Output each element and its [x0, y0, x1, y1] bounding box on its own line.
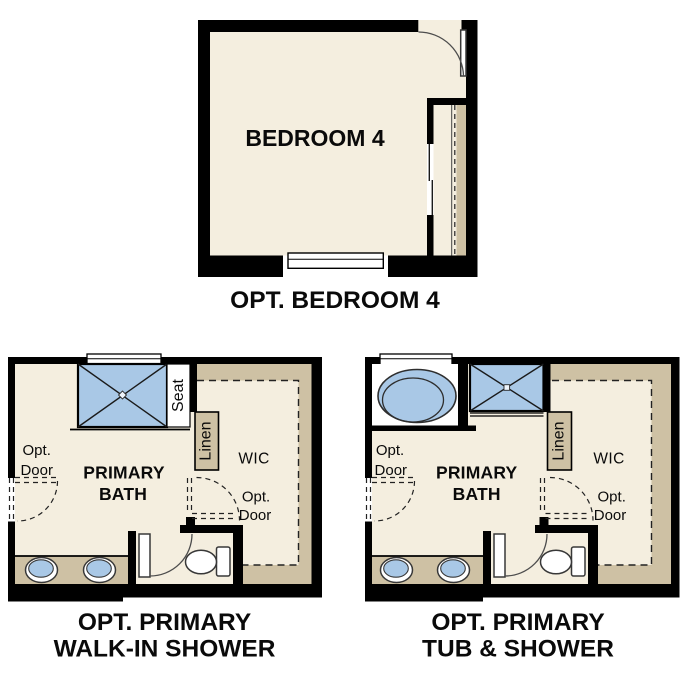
wall-bottom-right: [388, 256, 478, 278]
toilet-room-wall-left: [483, 531, 491, 584]
sink-basin: [87, 560, 112, 577]
room-label-line1: PRIMARY: [436, 463, 518, 483]
caption-line1: OPT. PRIMARY: [431, 609, 604, 636]
caption-line2: TUB & SHOWER: [422, 636, 614, 663]
door-leaf: [494, 534, 505, 577]
closet-top-wall: [427, 98, 478, 105]
divider-wall: [190, 364, 197, 412]
floorplan-sheet: BEDROOM 4 OPT. BEDROOM 4: [0, 0, 687, 687]
plan-opt-bedroom-4: BEDROOM 4 OPT. BEDROOM 4: [198, 20, 478, 314]
vanity: [372, 556, 483, 584]
wall-bottom-thick: [8, 584, 123, 602]
sink: [381, 558, 413, 583]
divider-wall: [544, 364, 551, 412]
bathtub: [372, 364, 476, 431]
sink-basin: [29, 560, 54, 577]
caption-opt-bedroom4: OPT. BEDROOM 4: [230, 287, 440, 314]
wall-right: [466, 32, 478, 256]
toilet-room-wall-right: [233, 533, 243, 584]
room-label-line2: BATH: [453, 484, 501, 504]
tub-shower-wall: [458, 364, 468, 429]
toilet-room-wall-right: [588, 533, 598, 584]
shower-drain: [504, 385, 510, 391]
sink-basin: [384, 560, 409, 577]
wic-shelf-bottom: [598, 565, 652, 584]
wic-shelf-top: [551, 364, 672, 381]
toilet-room-wall-top: [180, 525, 243, 533]
opt-door-label-line2: Door: [375, 462, 408, 479]
toilet-bowl: [541, 550, 572, 574]
door-leaf: [139, 534, 150, 577]
bedroom4-window: [283, 253, 388, 277]
opt-door-label-line2: Door: [594, 507, 627, 524]
window-frame: [288, 253, 383, 268]
floorplan-canvas: BEDROOM 4 OPT. BEDROOM 4: [0, 0, 687, 687]
linen-closet: Linen: [548, 412, 572, 470]
closet-wall-upper: [427, 105, 434, 144]
wall-left-upper: [8, 364, 15, 478]
wall-bottom-thick: [365, 584, 483, 602]
walk-in-shower: Seat: [70, 364, 190, 430]
linen-closet: Linen: [195, 412, 219, 470]
opt-door-label-line1: Opt.: [376, 442, 404, 459]
tub-deck-edge: [372, 426, 476, 432]
sink: [26, 558, 58, 583]
wic-shelf-right: [652, 380, 672, 584]
opt-door-label-line1: Opt.: [598, 489, 626, 506]
wall-left: [198, 32, 210, 256]
wic-shelf-right: [299, 380, 312, 584]
toilet-tank: [572, 547, 586, 576]
wall-top-left: [198, 20, 418, 32]
toilet-tank: [217, 547, 231, 576]
toilet-room-wall-top: [535, 525, 598, 533]
opt-door-label-line1: Opt.: [23, 442, 51, 459]
seat-label: Seat: [170, 378, 187, 411]
wall-right: [312, 364, 323, 597]
sink: [438, 558, 470, 583]
linen-label: Linen: [551, 421, 568, 460]
vanity: [15, 556, 128, 584]
opt-door-label-line1: Opt.: [242, 489, 270, 506]
shower: [470, 364, 544, 416]
sink: [84, 558, 116, 583]
wic-shelf-top: [197, 364, 312, 381]
wall-left-upper: [365, 364, 372, 478]
caption-line1: OPT. PRIMARY: [78, 609, 251, 636]
wic-shelf-bottom: [243, 565, 299, 584]
room-label-line2: BATH: [99, 484, 147, 504]
caption-line2: WALK-IN SHOWER: [54, 636, 276, 663]
plan-opt-primary-walk-in-shower: Seat Linen Opt. Door Opt.: [8, 354, 322, 663]
room-label-line1: PRIMARY: [83, 463, 165, 483]
wic-label: WIC: [593, 451, 624, 468]
toilet-bowl: [186, 550, 217, 574]
wall-right: [671, 364, 680, 597]
linen-label: Linen: [198, 421, 215, 460]
room-label-bedroom4: BEDROOM 4: [245, 125, 385, 151]
toilet-room-wall-left: [128, 531, 136, 584]
wic-label: WIC: [238, 451, 269, 468]
wall-bottom-left: [198, 256, 283, 278]
opt-door-label-line2: Door: [20, 462, 53, 479]
plan-opt-primary-tub-and-shower: Linen Opt. Door Opt. Door: [365, 354, 680, 663]
closet-wall-lower: [427, 215, 434, 256]
opt-door-label-line2: Door: [239, 507, 272, 524]
closet-shelf-band: [457, 105, 467, 256]
sink-basin: [441, 560, 466, 577]
